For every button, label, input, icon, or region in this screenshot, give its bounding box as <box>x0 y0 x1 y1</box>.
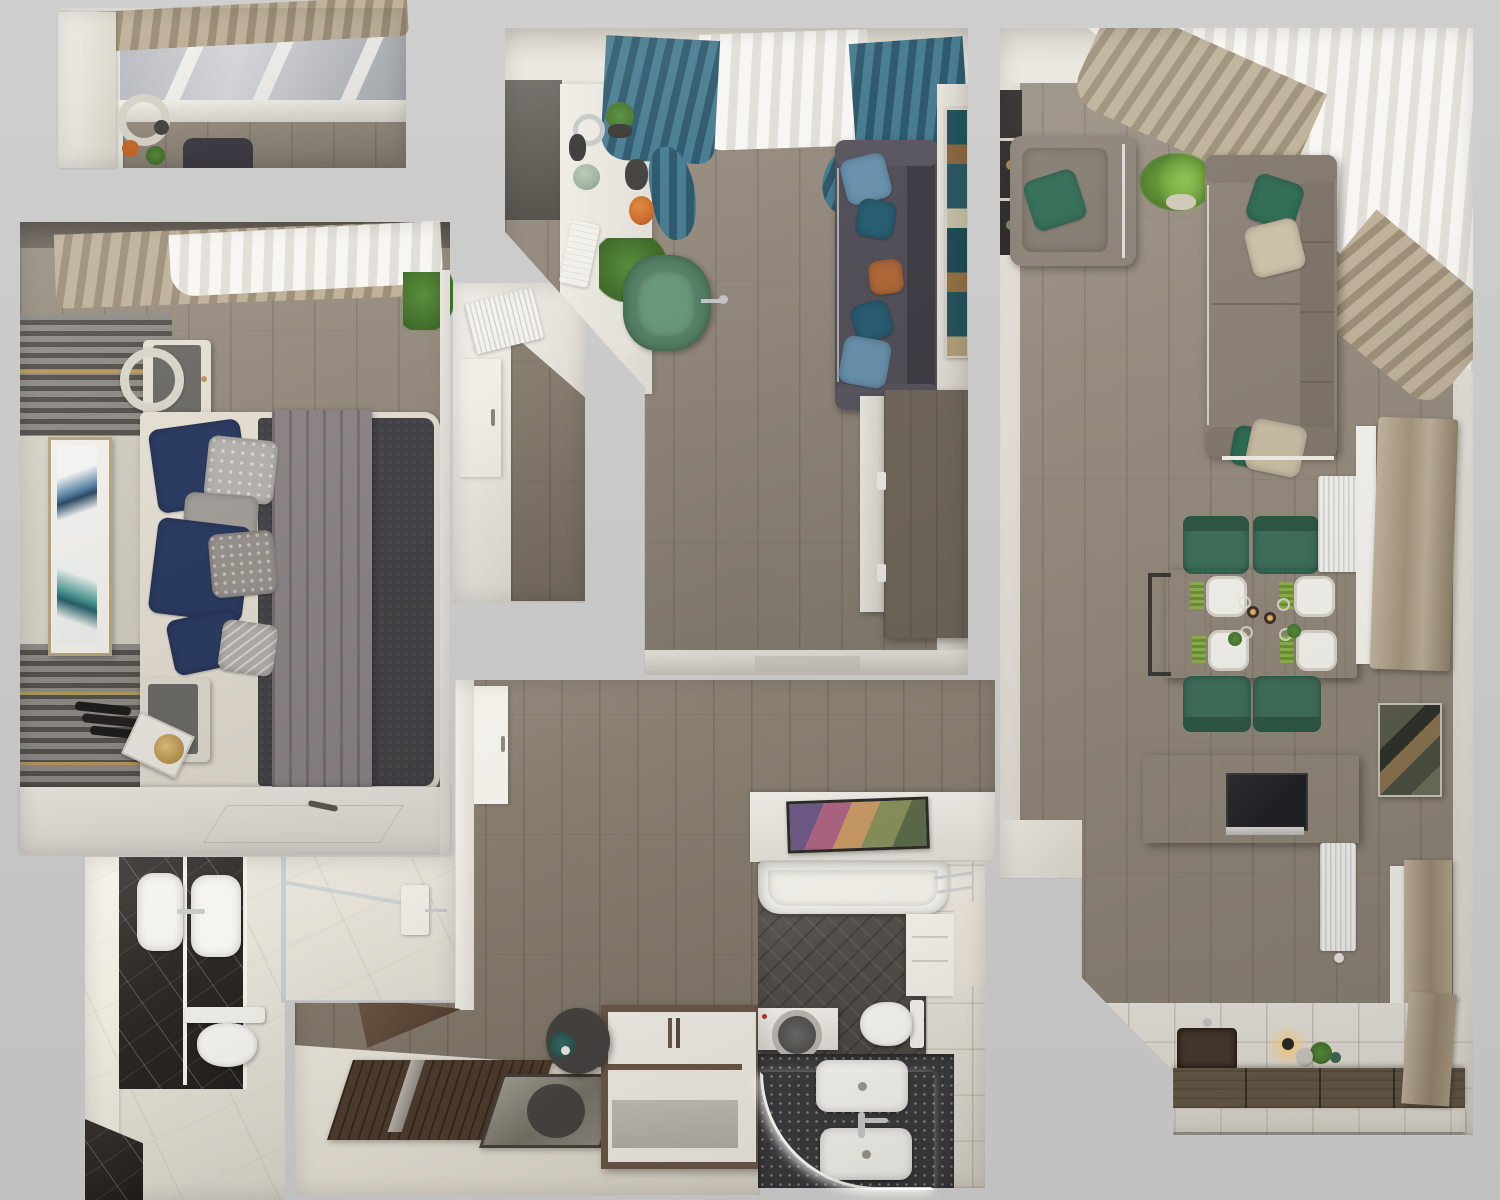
bedroom-wardrobe <box>20 787 450 855</box>
mirror-pouf-reflection <box>527 1084 585 1138</box>
kitchen-taupe-curtain <box>1401 991 1457 1106</box>
kitchen-plant <box>1310 1042 1332 1064</box>
bath-toilet-bowl <box>197 1023 257 1067</box>
slat-gold-line <box>20 692 152 695</box>
bath2-toilet-tank <box>910 1000 924 1048</box>
cabinet-divider <box>1319 1068 1321 1108</box>
table-lamp-ring <box>120 348 184 412</box>
chair-cushion <box>637 271 695 337</box>
living-radiator <box>1320 843 1356 951</box>
placemat-green <box>1192 636 1206 663</box>
decor-plant <box>146 146 165 165</box>
sofa-pillow-blue <box>837 334 893 390</box>
cabinet-handle <box>676 1018 680 1048</box>
living-bottom-left-wall <box>1000 820 1082 878</box>
armchair-piping <box>1122 144 1125 258</box>
study-sheer-curtain <box>699 29 871 151</box>
room-bedroom <box>20 222 450 855</box>
decor-orange-vase <box>629 196 654 225</box>
room-bathroom-second <box>758 862 985 1188</box>
table-candle <box>1264 612 1276 624</box>
pouf-decor-white-dot <box>561 1046 570 1055</box>
dining-chair <box>1253 676 1321 732</box>
window-taupe-curtain <box>1370 417 1459 672</box>
study-teal-curtain-left <box>600 35 720 165</box>
living-radiator <box>1318 476 1360 572</box>
table-mini-plant <box>1228 632 1242 646</box>
decor-dark-bowl <box>154 120 169 135</box>
door-handle <box>501 736 505 752</box>
entry-shoe-cabinet <box>601 1005 763 1169</box>
sofa-seat-line <box>1211 303 1301 305</box>
wardrobe-door-outline <box>203 805 404 843</box>
balcony-sofa-corner <box>183 138 253 168</box>
decor-dark-vase <box>625 159 648 190</box>
bedroom-artwork <box>48 437 112 656</box>
dining-chair <box>1183 516 1249 574</box>
bedroom-right-wall <box>440 270 450 855</box>
sofa-pillow-beige <box>1243 417 1309 480</box>
washing-machine <box>758 1008 838 1050</box>
wall-shelf-line <box>912 936 948 938</box>
placemat-green <box>1190 582 1204 609</box>
bath-toilet-tank <box>185 1007 265 1023</box>
table-glass <box>1277 598 1290 611</box>
shower-glass-panel <box>281 857 286 1003</box>
chair-back-edge <box>1253 717 1321 732</box>
room-inner-hall <box>453 283 585 603</box>
hall-left-wall <box>455 680 474 1010</box>
sofa-pillow-orange <box>867 258 904 295</box>
radiator-valve <box>1334 953 1344 963</box>
dining-plate <box>1294 576 1335 617</box>
artwork-panel-bottom <box>57 548 97 644</box>
table-mini-plant <box>1287 624 1301 638</box>
cabinet-divider <box>1393 1068 1395 1108</box>
dining-chair <box>1253 516 1319 574</box>
mat-metal-strip <box>388 1060 425 1132</box>
bath2-bathtub <box>758 862 948 914</box>
plant-pot <box>1166 194 1196 210</box>
door-handle <box>491 409 495 426</box>
inner-hall-radiator <box>464 287 545 354</box>
abstract-artwork <box>1378 703 1442 797</box>
bath-mirror-strip <box>183 857 187 1085</box>
tv-soundbar <box>1226 827 1304 835</box>
floor-plan-canvas <box>0 0 1500 1200</box>
bath2-toilet-bowl <box>860 1002 912 1046</box>
bed-pillow-chevron <box>217 618 280 677</box>
shower-glass-edge <box>286 881 405 906</box>
bath2-wall-column <box>906 914 954 996</box>
room-balcony <box>58 8 406 168</box>
cabinet-handle <box>668 1018 672 1048</box>
artwork-panel-top <box>57 446 97 540</box>
sofa-backrest <box>907 144 935 406</box>
kitchen-dishes <box>1330 1052 1341 1063</box>
decor-gold-bowl <box>154 734 184 764</box>
decor-dark-bottle <box>569 134 586 161</box>
decor-orange-bowl <box>122 140 139 157</box>
study-dresser <box>884 390 968 638</box>
study-tall-artwork <box>945 108 969 358</box>
bath-faucet <box>177 909 205 914</box>
tv-console <box>1143 755 1359 843</box>
inner-hall-floor <box>511 333 585 601</box>
study-dark-wall <box>505 80 562 220</box>
bath-sink <box>191 875 241 957</box>
washer-indicator <box>762 1014 767 1019</box>
washer-drum <box>772 1010 822 1060</box>
wall-lamp <box>1282 1038 1294 1050</box>
table-glass <box>1240 626 1253 639</box>
wall-shelf-line <box>912 960 948 962</box>
room-living-dining-kitchen <box>1000 28 1473 1135</box>
chair-base <box>701 299 721 303</box>
shower-bar <box>425 909 447 912</box>
sofa-piping <box>837 168 839 382</box>
cabinet-divider <box>608 1064 742 1070</box>
bathtub-inner <box>768 870 938 906</box>
tv-screen <box>1226 773 1308 831</box>
dresser-handle <box>877 472 886 490</box>
sofa-base-line <box>1222 456 1334 460</box>
console-colorful-painting <box>786 797 930 854</box>
table-glass <box>1238 596 1251 609</box>
sofa-piping <box>1207 185 1209 425</box>
kitchen-cabinet-glass-row <box>1173 1108 1465 1132</box>
chair-back-edge <box>1183 717 1251 732</box>
decor-sage-sphere <box>573 164 600 190</box>
slat-gold-line <box>20 762 152 765</box>
kitchen-sink <box>1177 1028 1237 1071</box>
bath-dark-floor-streak <box>85 1119 143 1200</box>
kitchen-dishes <box>1296 1048 1313 1065</box>
decor-plant-pot-base <box>608 124 632 138</box>
dining-chair <box>1183 676 1251 732</box>
chair-caster <box>719 295 728 304</box>
entry-wood-shelf <box>357 998 461 1048</box>
dining-plate <box>1296 630 1337 671</box>
sofa-pillow-teal <box>854 197 898 241</box>
dresser-handle <box>877 564 886 582</box>
sofa-back-cushions <box>1300 159 1334 453</box>
cabinet-divider <box>1245 1068 1247 1108</box>
cabinet-mirror-front <box>612 1100 738 1148</box>
study-office-chair <box>623 255 713 355</box>
balcony-cabinet <box>58 12 116 168</box>
table-candle <box>1247 606 1259 618</box>
bed-pillow-dotted <box>207 529 278 599</box>
bath2-door-opening <box>954 902 985 986</box>
study-threshold <box>755 656 860 672</box>
chair-back-edge <box>1183 516 1249 531</box>
bed-blanket <box>272 410 372 802</box>
kitchen-faucet <box>1203 1018 1212 1027</box>
nightstand-gold-handle <box>201 376 207 382</box>
chair-back-edge <box>1253 516 1319 531</box>
